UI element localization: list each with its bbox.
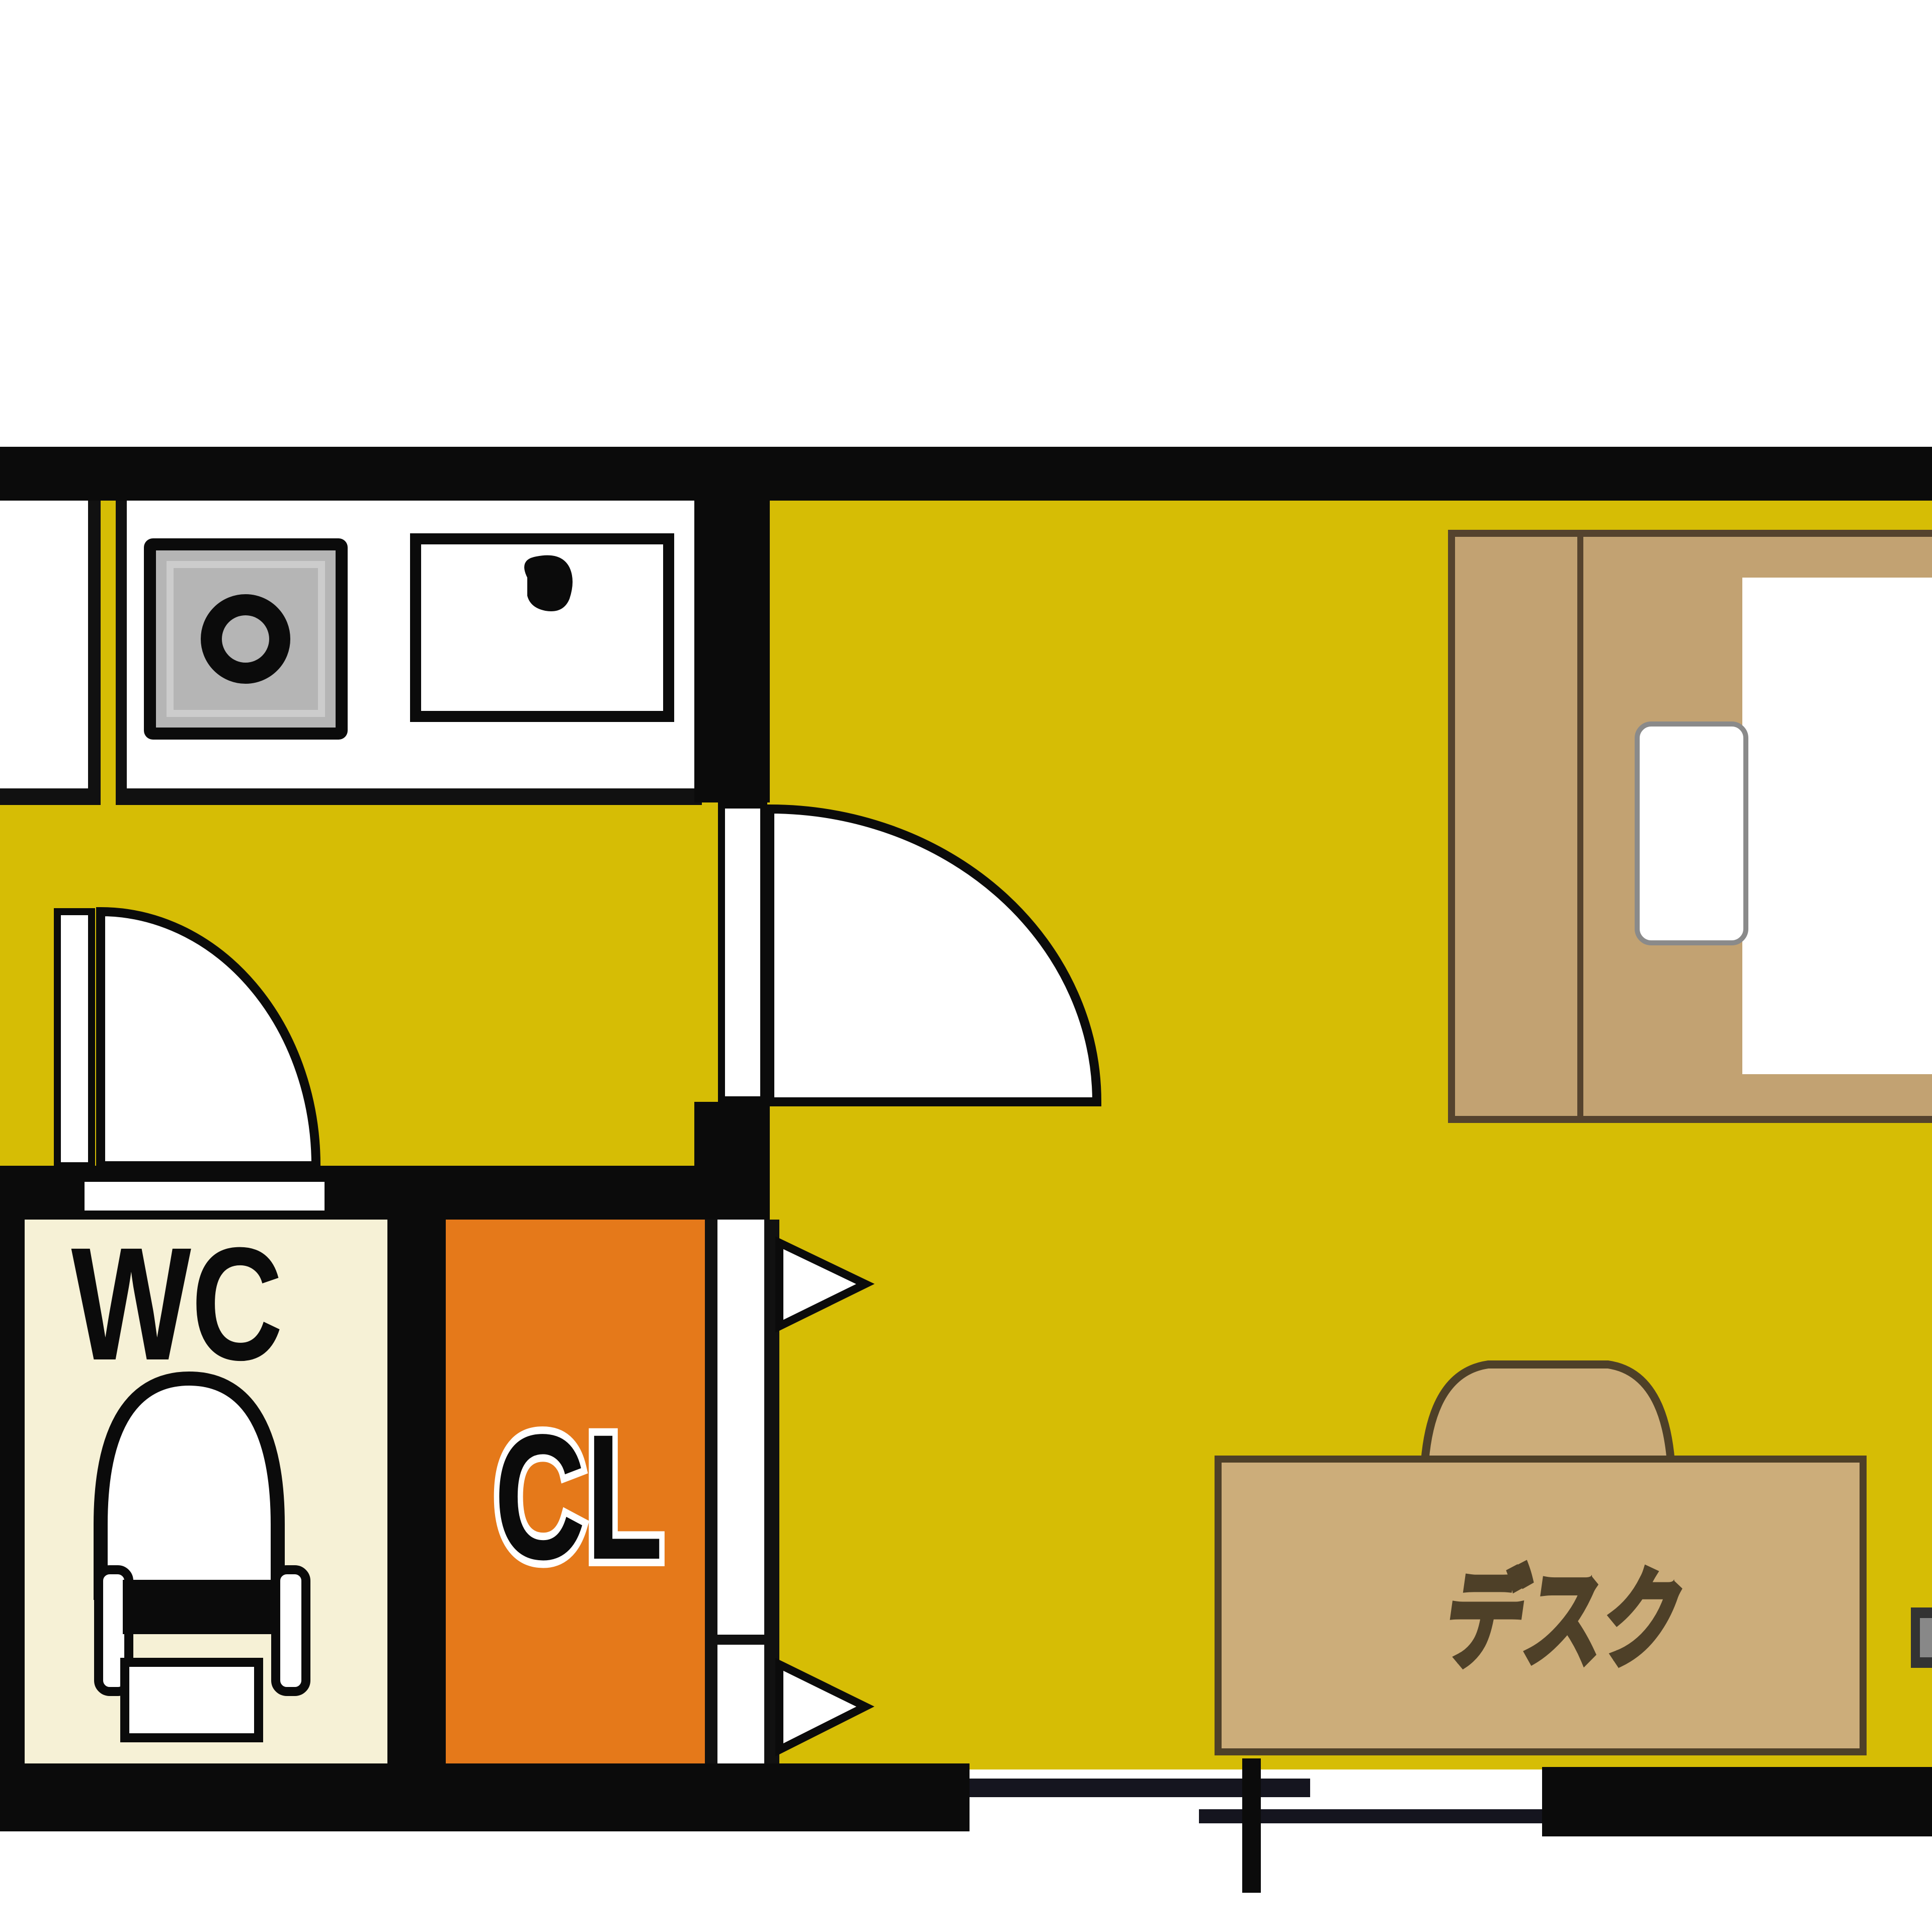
svg-text:WC: WC [71,1214,283,1394]
svg-text:デスク: デスク [1438,1561,1692,1681]
svg-text:CL: CL [494,1397,663,1597]
